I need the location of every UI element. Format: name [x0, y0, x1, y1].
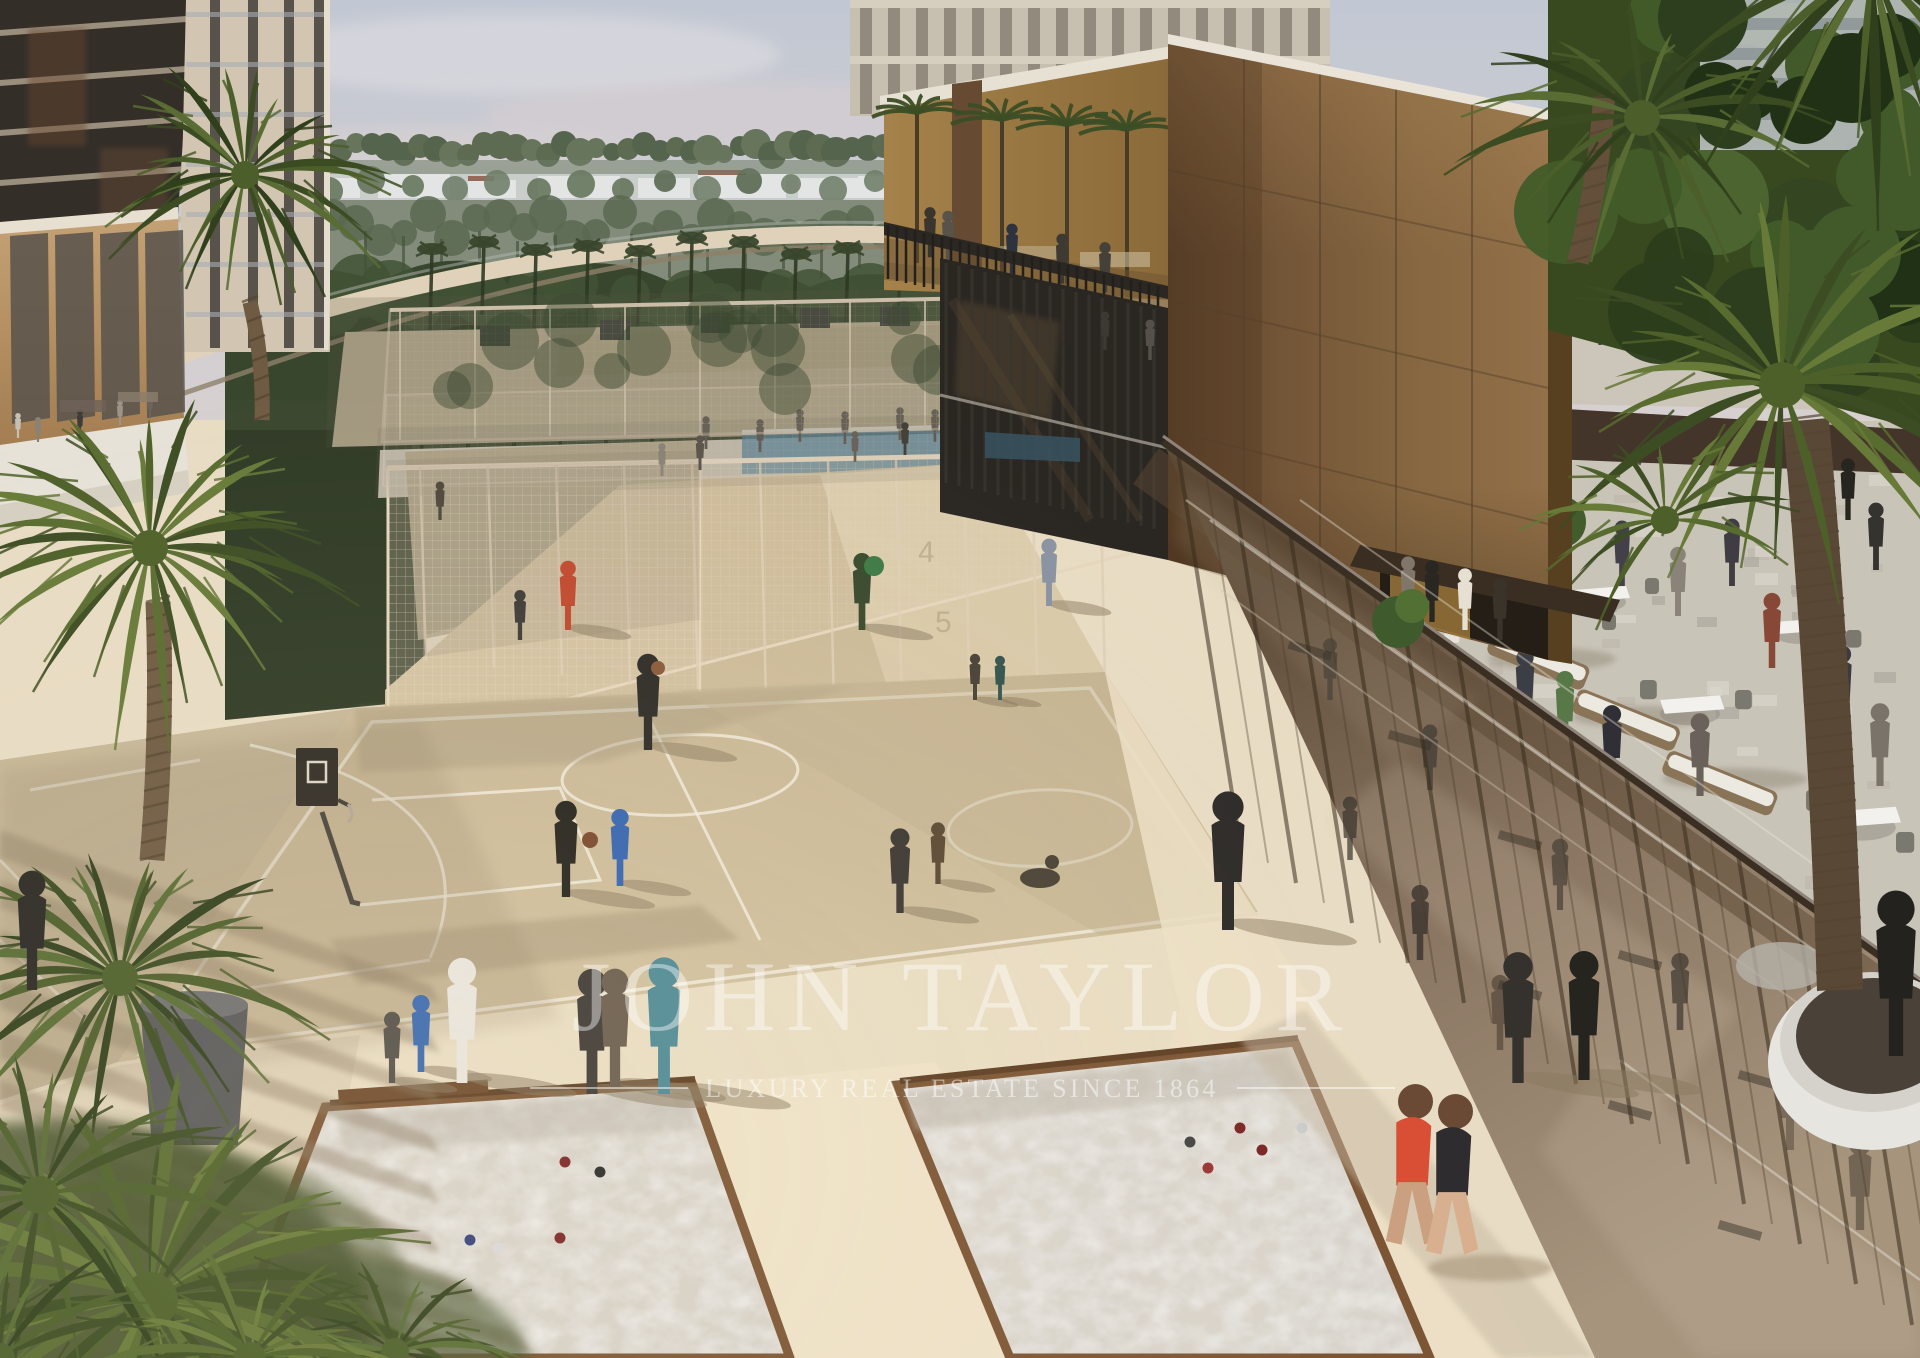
svg-text:LUXURY REAL ESTATE SINCE 1864: LUXURY REAL ESTATE SINCE 1864	[705, 1074, 1218, 1103]
svg-text:JOHN TAYLOR: JOHN TAYLOR	[572, 941, 1352, 1052]
